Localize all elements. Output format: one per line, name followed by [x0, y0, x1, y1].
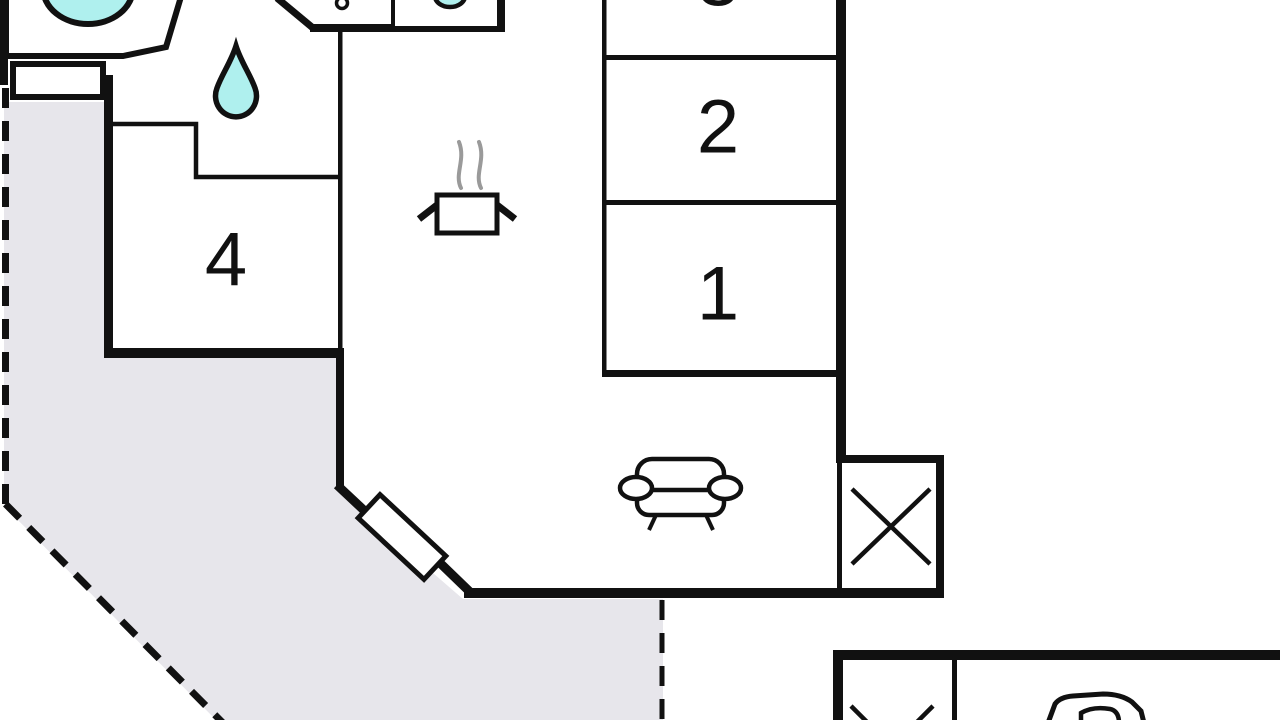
- wall-livingroom-west-lower: [336, 355, 344, 489]
- door-knob-icon: [337, 0, 348, 9]
- floor-plan-canvas: 3 2 1 4: [0, 0, 1280, 720]
- room-3-label: 3: [697, 0, 739, 23]
- floor-plan: 3 2 1 4: [0, 0, 1280, 720]
- sofa-icon: [620, 459, 741, 530]
- crossed-box-icon: [852, 489, 930, 564]
- sofa-armrest-right: [709, 477, 741, 499]
- wall-room4-west: [104, 75, 113, 357]
- sink-counter-right-edge: [497, 0, 505, 26]
- wall-hall-west: [338, 25, 343, 350]
- crossed-box-annex-icon: [851, 706, 933, 720]
- steam-icon: [459, 142, 462, 188]
- annex-fixtures: [851, 694, 1144, 720]
- kitchen-fixtures: [391, 0, 515, 233]
- wall-bath-diagonal: [277, 0, 313, 28]
- steam-icon: [479, 142, 482, 188]
- terrace-surface: [4, 102, 663, 720]
- wall-room4-south: [104, 348, 344, 358]
- room-1-label: 1: [697, 252, 739, 337]
- wall-annex-west: [833, 650, 843, 720]
- wall-storage-west: [837, 463, 842, 589]
- terrace-area: [4, 88, 663, 720]
- pot-body: [437, 195, 497, 233]
- wall-room3-room2-divider: [604, 55, 846, 60]
- kitchen-sink-icon: [435, 0, 465, 7]
- wall-annex-north: [833, 650, 1280, 660]
- wall-room2-room1-divider: [604, 200, 846, 205]
- sink-counter-left-edge: [391, 0, 395, 26]
- pot-handle-right: [497, 205, 515, 219]
- room-labels: 3 2 1 4: [205, 0, 739, 337]
- shower-drop-icon: [216, 46, 257, 117]
- wall-storage-east: [936, 455, 944, 598]
- wall-east-exterior: [836, 0, 846, 463]
- room-2-label: 2: [697, 85, 739, 170]
- wall-room4-north-step: [109, 124, 340, 177]
- wall-room1-south: [602, 370, 846, 377]
- window-icon: [13, 64, 103, 97]
- sofa-armrest-left: [620, 477, 652, 499]
- room-4-label: 4: [205, 218, 247, 303]
- toilet-icon: [1048, 694, 1144, 720]
- wall-annex-divider: [952, 660, 957, 720]
- pot-handle-left: [419, 205, 437, 219]
- wall-storage-north: [836, 455, 944, 463]
- stove-pot-icon: [419, 142, 515, 233]
- wall-livingroom-south: [464, 588, 944, 598]
